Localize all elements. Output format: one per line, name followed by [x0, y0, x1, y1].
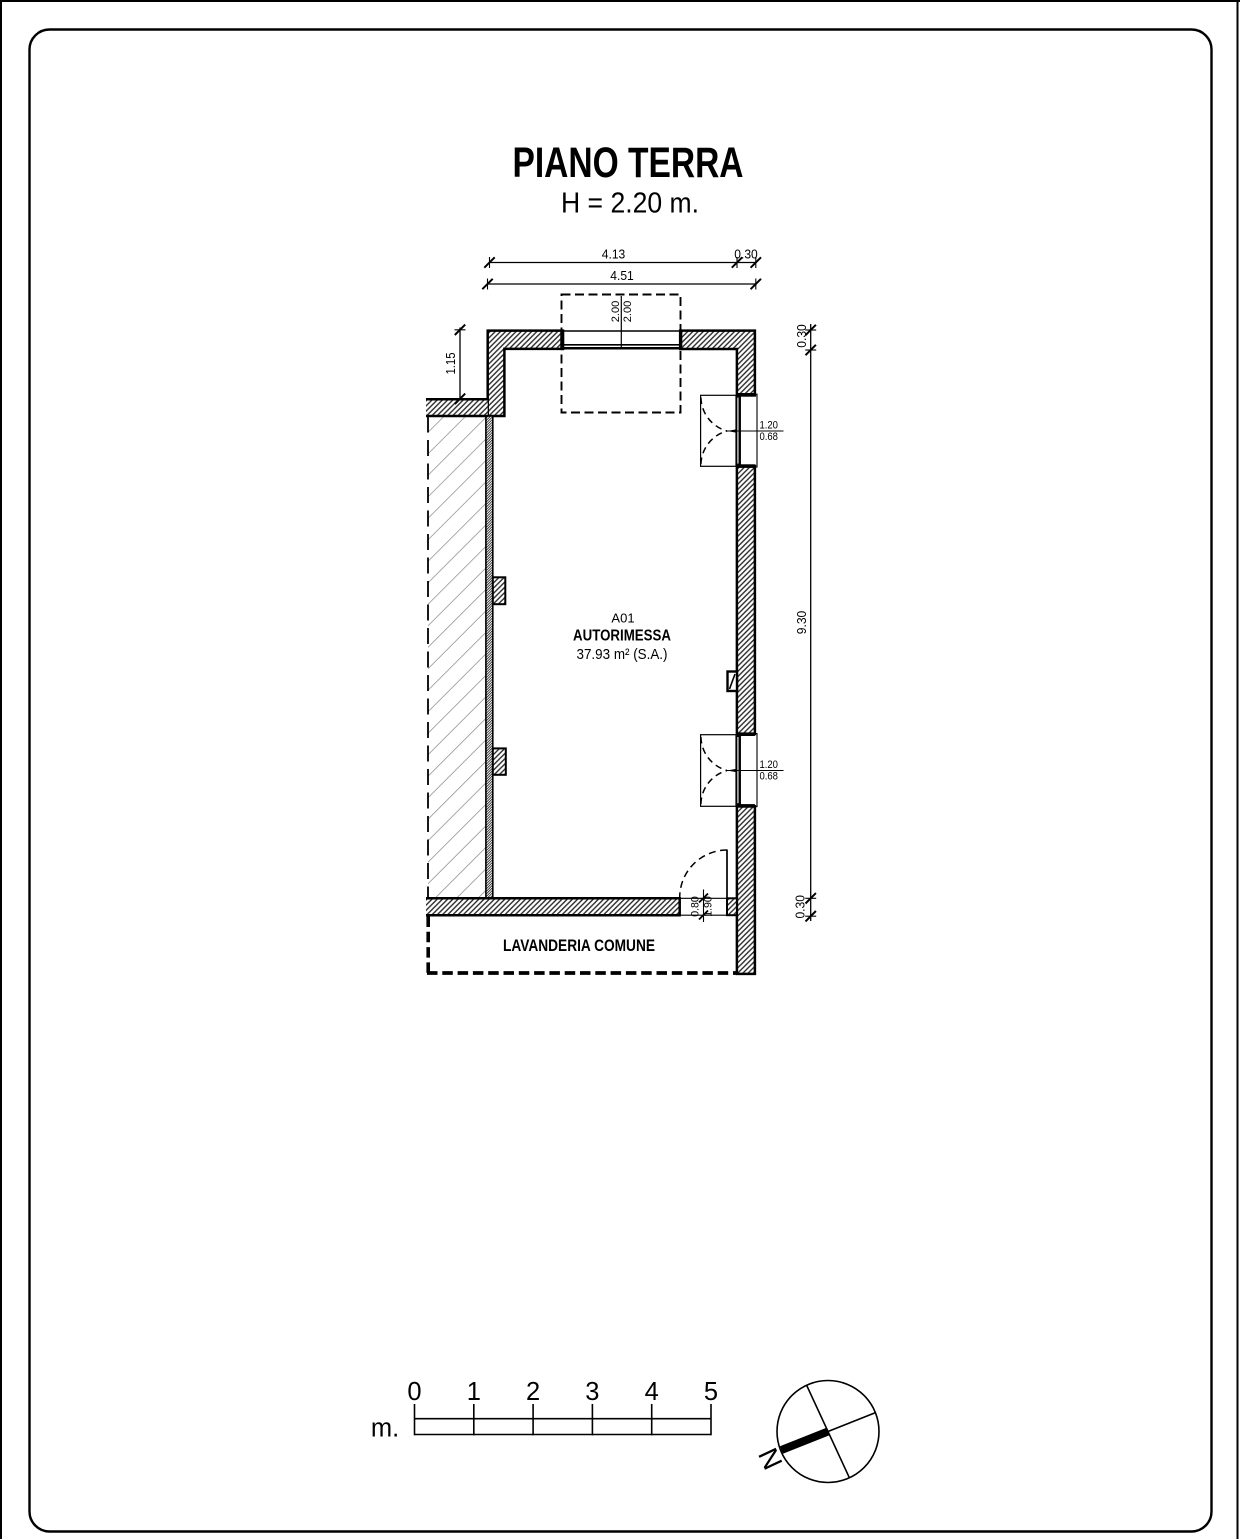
svg-text:9.30: 9.30 — [795, 611, 809, 635]
svg-text:m.: m. — [371, 1415, 399, 1443]
svg-text:2.00: 2.00 — [610, 301, 622, 323]
svg-text:LAVANDERIA COMUNE: LAVANDERIA COMUNE — [503, 937, 655, 955]
svg-text:4: 4 — [645, 1378, 659, 1406]
svg-text:4.51: 4.51 — [610, 269, 634, 283]
svg-text:0.30: 0.30 — [795, 324, 809, 348]
svg-text:0.30: 0.30 — [734, 248, 758, 262]
svg-text:1.90: 1.90 — [703, 896, 715, 917]
svg-text:A01: A01 — [611, 611, 634, 626]
svg-text:H = 2.20 m.: H = 2.20 m. — [561, 188, 699, 220]
svg-text:AUTORIMESSA: AUTORIMESSA — [573, 628, 671, 645]
svg-text:0.80: 0.80 — [690, 896, 702, 917]
svg-text:1.20: 1.20 — [759, 759, 778, 771]
svg-text:PIANO TERRA: PIANO TERRA — [513, 139, 744, 186]
svg-text:1.15: 1.15 — [444, 352, 458, 374]
svg-text:0: 0 — [407, 1378, 421, 1406]
svg-text:0.68: 0.68 — [759, 431, 778, 443]
svg-text:0.30: 0.30 — [794, 895, 808, 919]
svg-text:37.93 m² (S.A.): 37.93 m² (S.A.) — [577, 646, 668, 663]
svg-text:5: 5 — [704, 1378, 718, 1406]
svg-text:2.00: 2.00 — [622, 301, 634, 323]
svg-text:2: 2 — [526, 1378, 540, 1406]
svg-text:0.68: 0.68 — [759, 771, 778, 783]
svg-text:3: 3 — [585, 1378, 599, 1406]
svg-text:1: 1 — [467, 1378, 481, 1406]
svg-text:4.13: 4.13 — [602, 248, 626, 262]
svg-text:1.20: 1.20 — [759, 419, 778, 431]
